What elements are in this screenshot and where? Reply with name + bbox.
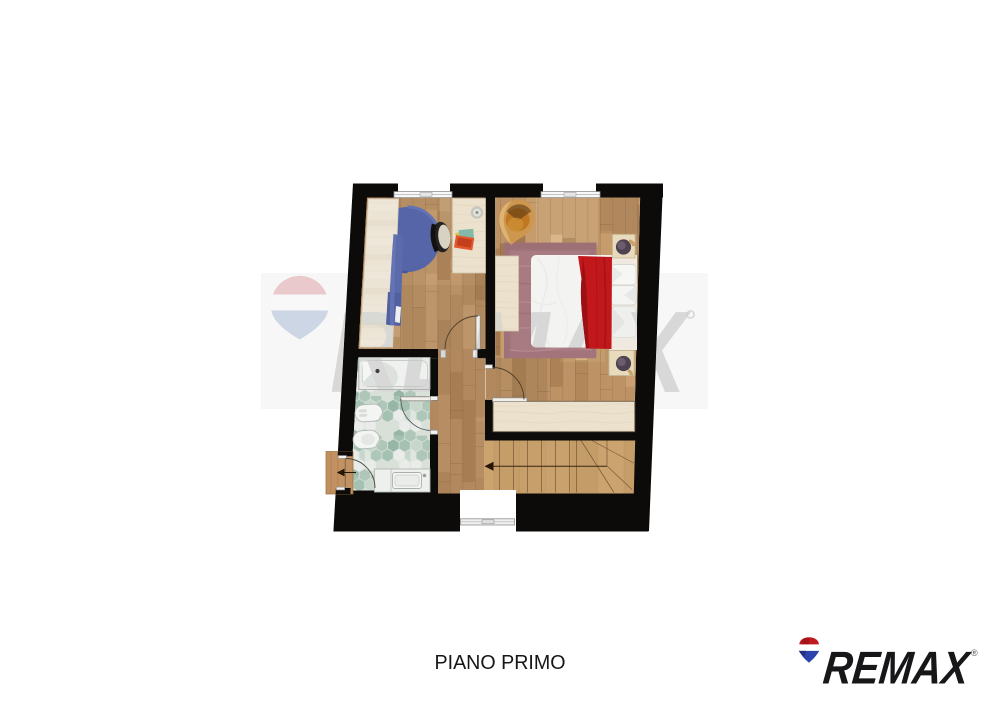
svg-text:®: ® (971, 648, 978, 658)
svg-text:REMAX: REMAX (821, 642, 974, 694)
svg-text:PIANO PRIMO: PIANO PRIMO (435, 651, 566, 674)
svg-text:REMAX: REMAX (330, 287, 692, 417)
